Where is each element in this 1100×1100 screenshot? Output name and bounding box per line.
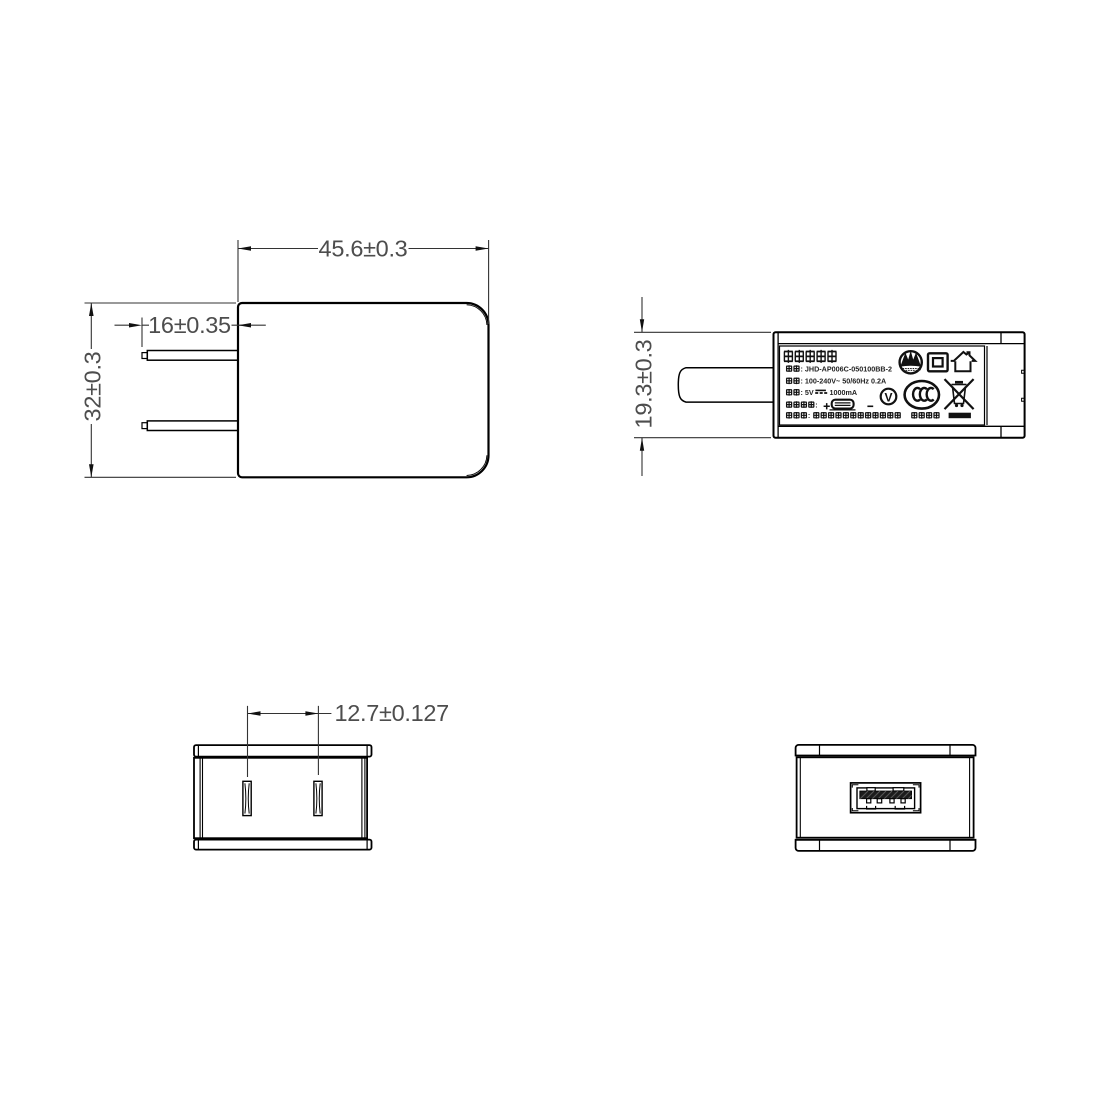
svg-text:32±0.3: 32±0.3 (80, 351, 106, 421)
svg-text::: : (815, 401, 817, 410)
svg-text:V: V (884, 390, 892, 404)
svg-text:45.6±0.3: 45.6±0.3 (319, 236, 408, 262)
svg-text:12.7±0.127: 12.7±0.127 (335, 700, 449, 726)
svg-text::: : (808, 411, 810, 420)
svg-text:: JHD-AP006C-050100BB-2: : JHD-AP006C-050100BB-2 (801, 365, 892, 374)
svg-text:: 100-240V~ 50/60Hz 0.2A: : 100-240V~ 50/60Hz 0.2A (801, 377, 887, 386)
svg-text:19.3±0.3: 19.3±0.3 (631, 339, 657, 428)
svg-text:16±0.35: 16±0.35 (148, 312, 231, 338)
svg-text:: 5V: : 5V (801, 388, 814, 397)
svg-text:1000mA: 1000mA (830, 388, 858, 397)
